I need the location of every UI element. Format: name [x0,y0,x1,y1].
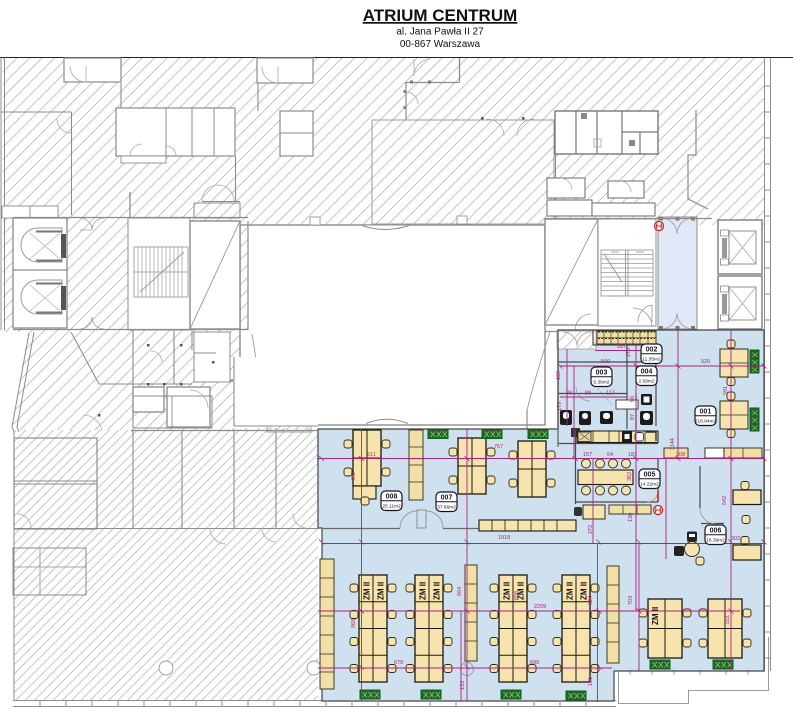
svg-text:5.36m2: 5.36m2 [594,379,610,385]
svg-text:88: 88 [566,391,572,397]
svg-text:169: 169 [556,371,562,380]
svg-text:2209: 2209 [534,604,546,610]
svg-text:551: 551 [725,615,731,624]
svg-text:008: 008 [386,494,398,501]
svg-text:362: 362 [627,472,633,481]
svg-text:591: 591 [723,386,729,395]
svg-text:54: 54 [607,452,613,458]
svg-text:007: 007 [441,495,453,502]
svg-text:005: 005 [644,472,656,479]
svg-text:679: 679 [394,660,403,666]
svg-text:191: 191 [588,677,594,686]
svg-text:287: 287 [617,344,626,350]
svg-text:006: 006 [710,528,722,535]
svg-text:302: 302 [731,536,740,542]
svg-text:699: 699 [530,660,539,666]
svg-text:37.66m2: 37.66m2 [437,504,456,510]
svg-text:133: 133 [460,681,466,690]
svg-text:767: 767 [494,444,503,450]
svg-text:003: 003 [596,370,608,377]
svg-text:117: 117 [606,391,615,397]
svg-text:130: 130 [628,513,634,522]
svg-text:187: 187 [628,452,637,458]
svg-text:1144: 1144 [670,438,676,450]
svg-text:270: 270 [626,348,632,357]
svg-text:00-867 Warszawa: 00-867 Warszawa [400,39,481,50]
svg-text:524: 524 [588,596,594,605]
svg-text:208: 208 [676,452,685,458]
svg-text:14.22m2: 14.22m2 [640,481,659,487]
svg-text:al. Jana Pawła II 27: al. Jana Pawła II 27 [396,27,484,38]
svg-text:ZM II: ZM II [651,607,660,625]
svg-text:11.35m2: 11.35m2 [642,356,661,362]
svg-text:001: 001 [700,409,712,416]
svg-text:703: 703 [628,596,634,605]
svg-text:004: 004 [641,369,653,376]
svg-text:2.59m2: 2.59m2 [639,378,655,384]
svg-text:96: 96 [630,396,636,402]
svg-text:88: 88 [585,391,591,397]
svg-text:520: 520 [701,359,710,365]
svg-text:656: 656 [514,591,520,600]
svg-text:272: 272 [588,525,594,534]
svg-text:25.11m2: 25.11m2 [382,503,401,509]
svg-text:ATRIUM CENTRUM: ATRIUM CENTRUM [363,6,518,25]
svg-text:157: 157 [583,452,592,458]
svg-text:87: 87 [630,414,636,420]
svg-text:511: 511 [367,452,376,458]
svg-text:16.39m2: 16.39m2 [706,537,725,543]
svg-text:179: 179 [557,402,563,411]
svg-text:492: 492 [351,472,357,481]
svg-text:542: 542 [722,496,728,505]
svg-text:664: 664 [457,587,463,596]
svg-text:002: 002 [646,347,658,354]
svg-text:216.94m2: 216.94m2 [695,418,717,424]
svg-text:1918: 1918 [498,535,510,541]
svg-text:868: 868 [351,619,357,628]
svg-text:500: 500 [601,359,610,365]
